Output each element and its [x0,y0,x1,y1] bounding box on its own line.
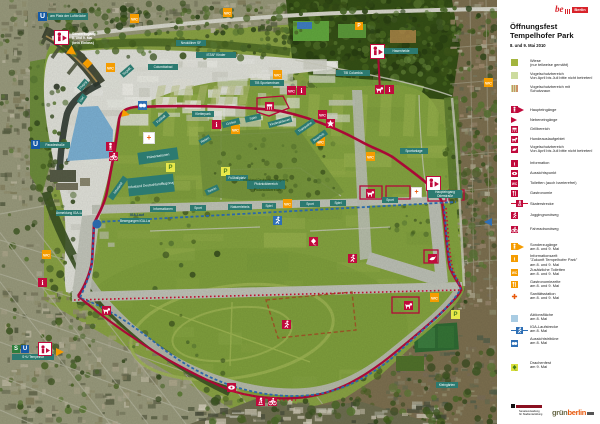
svg-text:WC: WC [43,252,50,257]
svg-text:WC: WC [131,16,138,21]
svg-text:WC: WC [232,127,239,132]
svg-text:WC: WC [274,72,281,77]
svg-text:WC: WC [319,112,326,117]
svg-text:WC: WC [367,154,374,159]
svg-text:WC: WC [512,182,518,186]
svg-text:i: i [216,121,218,129]
svg-text:WC: WC [107,65,114,70]
svg-text:WC: WC [284,201,291,206]
svg-text:WC: WC [224,10,231,15]
svg-text:i: i [514,257,516,262]
svg-text:i: i [301,87,303,95]
svg-text:i: i [389,86,391,94]
svg-text:WC: WC [512,271,518,275]
svg-text:i: i [514,162,516,167]
svg-text:WC: WC [485,80,492,85]
svg-text:WC: WC [431,295,438,300]
svg-text:i: i [42,279,44,287]
svg-text:WC: WC [288,88,295,93]
